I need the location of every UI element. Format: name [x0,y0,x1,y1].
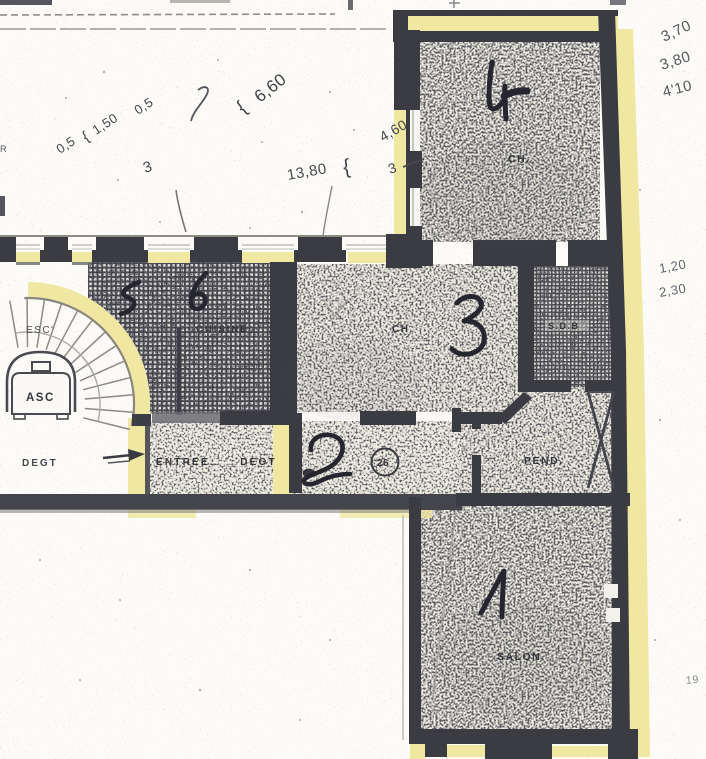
svg-text:CUISINE: CUISINE [196,324,249,335]
svg-text:ASC: ASC [26,392,55,404]
svg-text:S.D.B: S.D.B [548,321,580,331]
svg-text:W.C: W.C [160,324,178,333]
svg-text:CH.: CH. [392,324,414,335]
svg-text:19: 19 [685,674,699,687]
svg-text:DEGT: DEGT [22,458,58,469]
svg-text:SALON.: SALON. [497,651,546,663]
svg-text:PEND.: PEND. [524,455,564,467]
svg-text:R: R [0,144,7,154]
svg-text:26: 26 [377,458,389,469]
svg-text:ESC': ESC' [26,325,54,336]
svg-text:ENTREE. __ DEGT: ENTREE. __ DEGT [156,457,277,468]
svg-text:CH.: CH. [508,153,531,165]
